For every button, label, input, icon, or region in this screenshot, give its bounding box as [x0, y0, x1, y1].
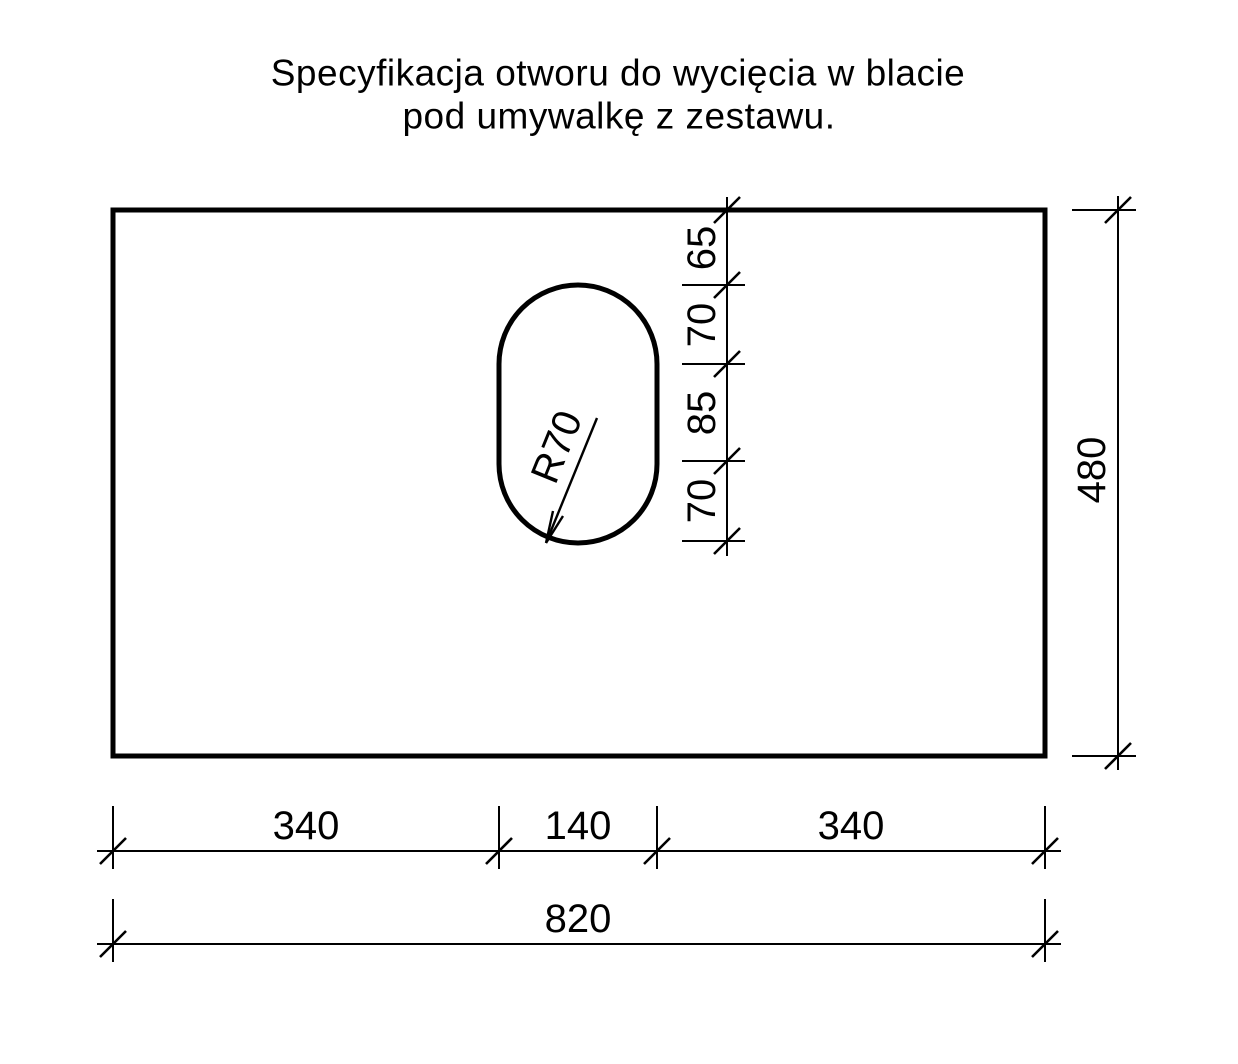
dim-label-140: 140	[545, 804, 612, 848]
title-line-2: pod umywalkę z zestawu.	[402, 96, 835, 137]
dim-label-480: 480	[1070, 437, 1114, 504]
dim-label-340-right: 340	[818, 804, 885, 848]
dim-label-85: 85	[680, 391, 724, 436]
dim-label-70-lower: 70	[680, 479, 724, 524]
dim-label-65: 65	[680, 226, 724, 271]
drawing-page: Specyfikacja otworu do wycięcia w blacie…	[0, 0, 1238, 1064]
dim-label-70-upper: 70	[680, 303, 724, 348]
countertop-cutout-drawing: Specyfikacja otworu do wycięcia w blacie…	[0, 0, 1238, 1064]
title-line-1: Specyfikacja otworu do wycięcia w blacie	[271, 53, 966, 94]
dim-label-820: 820	[545, 897, 612, 941]
dim-label-340-left: 340	[273, 804, 340, 848]
